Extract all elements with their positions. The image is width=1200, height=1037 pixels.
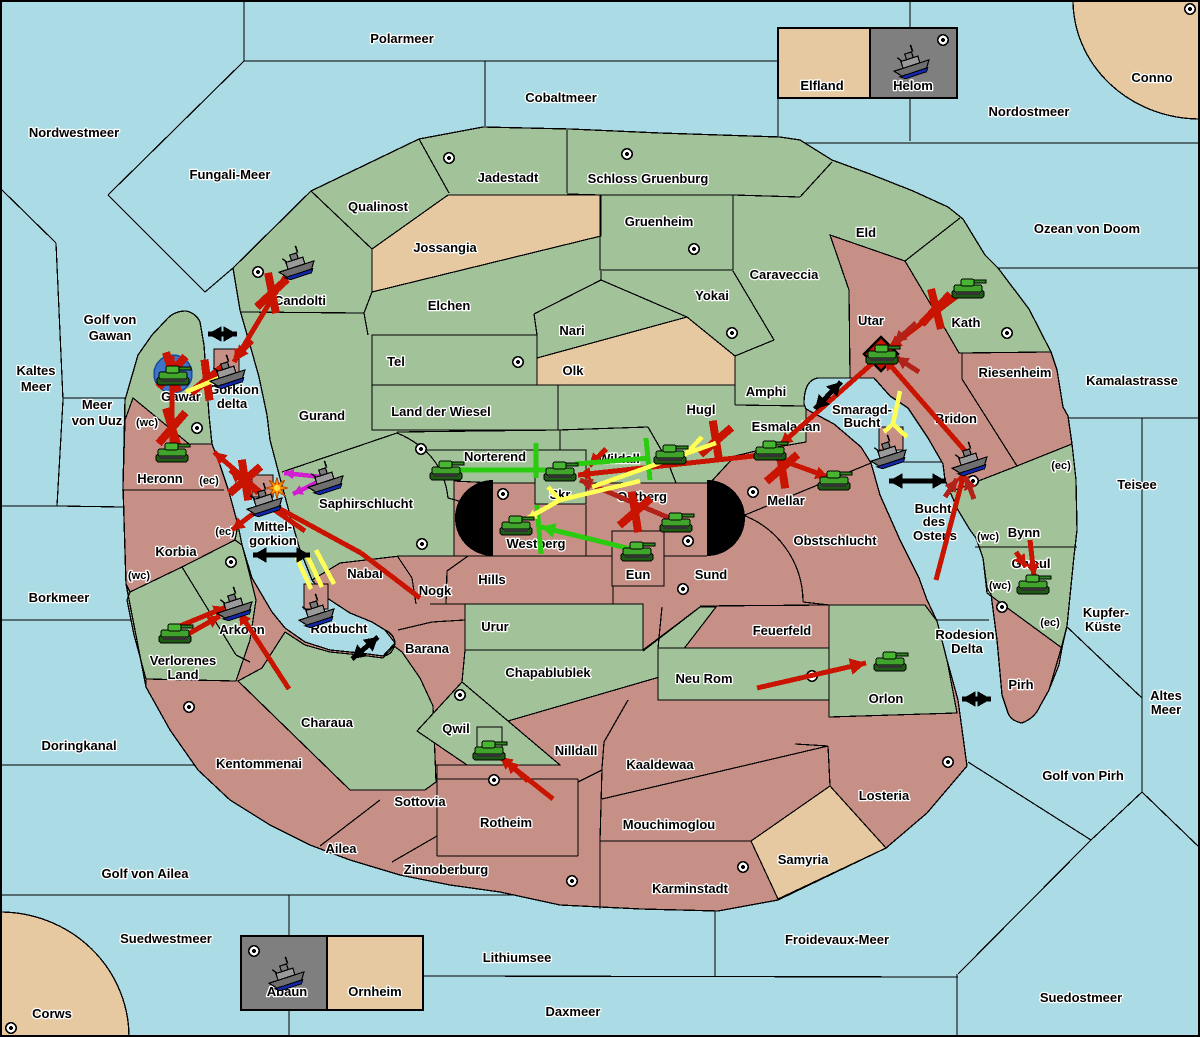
svg-text:Hugl: Hugl — [687, 402, 716, 417]
svg-text:Kamalastrasse: Kamalastrasse — [1086, 373, 1178, 388]
svg-text:Nari: Nari — [559, 323, 584, 338]
svg-text:Kentommenai: Kentommenai — [216, 756, 302, 771]
svg-text:Meer: Meer — [1151, 702, 1181, 717]
svg-text:Karminstadt: Karminstadt — [652, 881, 729, 896]
svg-text:(wc): (wc) — [977, 531, 999, 543]
svg-text:(wc): (wc) — [136, 417, 158, 429]
svg-text:von Uuz: von Uuz — [72, 413, 123, 428]
svg-text:Sund: Sund — [695, 567, 728, 582]
svg-text:Candolti: Candolti — [274, 293, 326, 308]
svg-text:Charaua: Charaua — [301, 715, 354, 730]
svg-text:(ec): (ec) — [1051, 460, 1071, 472]
svg-text:Conno: Conno — [1131, 70, 1172, 85]
svg-text:Jadestadt: Jadestadt — [478, 170, 539, 185]
svg-text:Meer: Meer — [82, 397, 112, 412]
svg-text:Kath: Kath — [952, 315, 981, 330]
svg-text:Schloss Gruenburg: Schloss Gruenburg — [588, 171, 709, 186]
svg-text:Altes: Altes — [1150, 688, 1182, 703]
svg-text:Olk: Olk — [563, 363, 585, 378]
svg-text:Hills: Hills — [478, 572, 505, 587]
svg-text:Polarmeer: Polarmeer — [370, 31, 434, 46]
svg-text:Qwil: Qwil — [442, 721, 469, 736]
svg-text:Utar: Utar — [858, 313, 884, 328]
svg-text:Saphirschlucht: Saphirschlucht — [319, 496, 414, 511]
svg-text:Daxmeer: Daxmeer — [546, 1004, 601, 1019]
svg-text:Corws: Corws — [32, 1006, 72, 1021]
svg-text:Nogk: Nogk — [419, 583, 452, 598]
svg-text:Ozean von Doom: Ozean von Doom — [1034, 221, 1140, 236]
svg-text:Feuerfeld: Feuerfeld — [753, 623, 812, 638]
svg-text:Kaaldewaa: Kaaldewaa — [626, 757, 694, 772]
svg-text:Doringkanal: Doringkanal — [41, 738, 116, 753]
svg-text:Riesenheim: Riesenheim — [979, 365, 1052, 380]
svg-text:Heronn: Heronn — [137, 471, 183, 486]
svg-text:Mouchimoglou: Mouchimoglou — [623, 817, 715, 832]
svg-text:Verlorenes: Verlorenes — [150, 653, 217, 668]
svg-text:des: des — [923, 514, 945, 529]
svg-text:Nilldall: Nilldall — [555, 743, 598, 758]
svg-text:Losteria: Losteria — [859, 788, 910, 803]
svg-text:Amphi: Amphi — [746, 384, 786, 399]
svg-text:Ornheim: Ornheim — [348, 984, 401, 999]
svg-text:Golf von Ailea: Golf von Ailea — [102, 866, 190, 881]
svg-text:Eun: Eun — [626, 567, 651, 582]
svg-text:Qualinost: Qualinost — [348, 199, 409, 214]
svg-text:Barana: Barana — [405, 641, 450, 656]
svg-text:Samyria: Samyria — [778, 852, 829, 867]
svg-text:Korbia: Korbia — [155, 544, 197, 559]
svg-text:Chapablublek: Chapablublek — [505, 665, 591, 680]
svg-text:(ec): (ec) — [199, 475, 219, 487]
svg-text:Golf von: Golf von — [84, 312, 137, 327]
svg-text:(ec): (ec) — [1040, 617, 1060, 629]
svg-text:Elchen: Elchen — [428, 298, 471, 313]
svg-text:Eld: Eld — [856, 225, 876, 240]
svg-text:Tel: Tel — [387, 354, 405, 369]
svg-text:Zinnoberburg: Zinnoberburg — [404, 862, 489, 877]
svg-text:Nordostmeer: Nordostmeer — [989, 104, 1070, 119]
svg-text:Obstschlucht: Obstschlucht — [793, 533, 877, 548]
svg-text:Küste: Küste — [1085, 619, 1121, 634]
svg-text:Kaltes: Kaltes — [16, 363, 55, 378]
svg-text:Gruenheim: Gruenheim — [625, 214, 694, 229]
svg-text:Kupfer-: Kupfer- — [1083, 605, 1129, 620]
svg-text:Mellar: Mellar — [767, 493, 805, 508]
svg-text:Cobaltmeer: Cobaltmeer — [525, 90, 597, 105]
svg-text:Rodesion: Rodesion — [935, 627, 994, 642]
svg-text:Yokai: Yokai — [695, 288, 729, 303]
svg-text:Ailea: Ailea — [325, 841, 357, 856]
svg-text:Fungali-Meer: Fungali-Meer — [190, 167, 271, 182]
svg-text:Jossangia: Jossangia — [413, 240, 477, 255]
svg-text:Gawan: Gawan — [89, 328, 132, 343]
svg-text:Sottovia: Sottovia — [394, 794, 446, 809]
svg-text:Teisee: Teisee — [1117, 477, 1157, 492]
svg-text:Elfland: Elfland — [800, 78, 843, 93]
svg-text:(wc): (wc) — [989, 580, 1011, 592]
svg-text:Urur: Urur — [481, 619, 508, 634]
svg-text:Caraveccia: Caraveccia — [750, 267, 819, 282]
svg-text:Suedwestmeer: Suedwestmeer — [120, 931, 212, 946]
svg-text:Rotheim: Rotheim — [480, 815, 532, 830]
svg-text:gorkion: gorkion — [249, 533, 297, 548]
svg-text:Neu Rom: Neu Rom — [675, 671, 732, 686]
svg-text:Suedostmeer: Suedostmeer — [1040, 990, 1122, 1005]
svg-text:Gurand: Gurand — [299, 408, 345, 423]
svg-text:Delta: Delta — [951, 641, 984, 656]
svg-text:Meer: Meer — [21, 379, 51, 394]
svg-text:Orlon: Orlon — [869, 691, 904, 706]
svg-text:delta: delta — [217, 396, 248, 411]
svg-text:Helom: Helom — [893, 78, 933, 93]
svg-text:Bucht: Bucht — [844, 415, 882, 430]
svg-text:Bynn: Bynn — [1008, 525, 1041, 540]
svg-text:Lithiumsee: Lithiumsee — [483, 950, 552, 965]
svg-text:Westberg: Westberg — [507, 536, 566, 551]
svg-text:Land der Wiesel: Land der Wiesel — [391, 404, 491, 419]
svg-text:Borkmeer: Borkmeer — [29, 590, 90, 605]
svg-text:Nordwestmeer: Nordwestmeer — [29, 125, 119, 140]
svg-text:Pirh: Pirh — [1008, 677, 1033, 692]
svg-text:(wc): (wc) — [128, 570, 150, 582]
svg-text:Froidevaux-Meer: Froidevaux-Meer — [785, 932, 889, 947]
svg-text:Land: Land — [167, 667, 198, 682]
svg-text:Golf von Pirh: Golf von Pirh — [1042, 768, 1124, 783]
svg-text:Mittel-: Mittel- — [254, 519, 292, 534]
svg-text:Norterend: Norterend — [464, 449, 526, 464]
